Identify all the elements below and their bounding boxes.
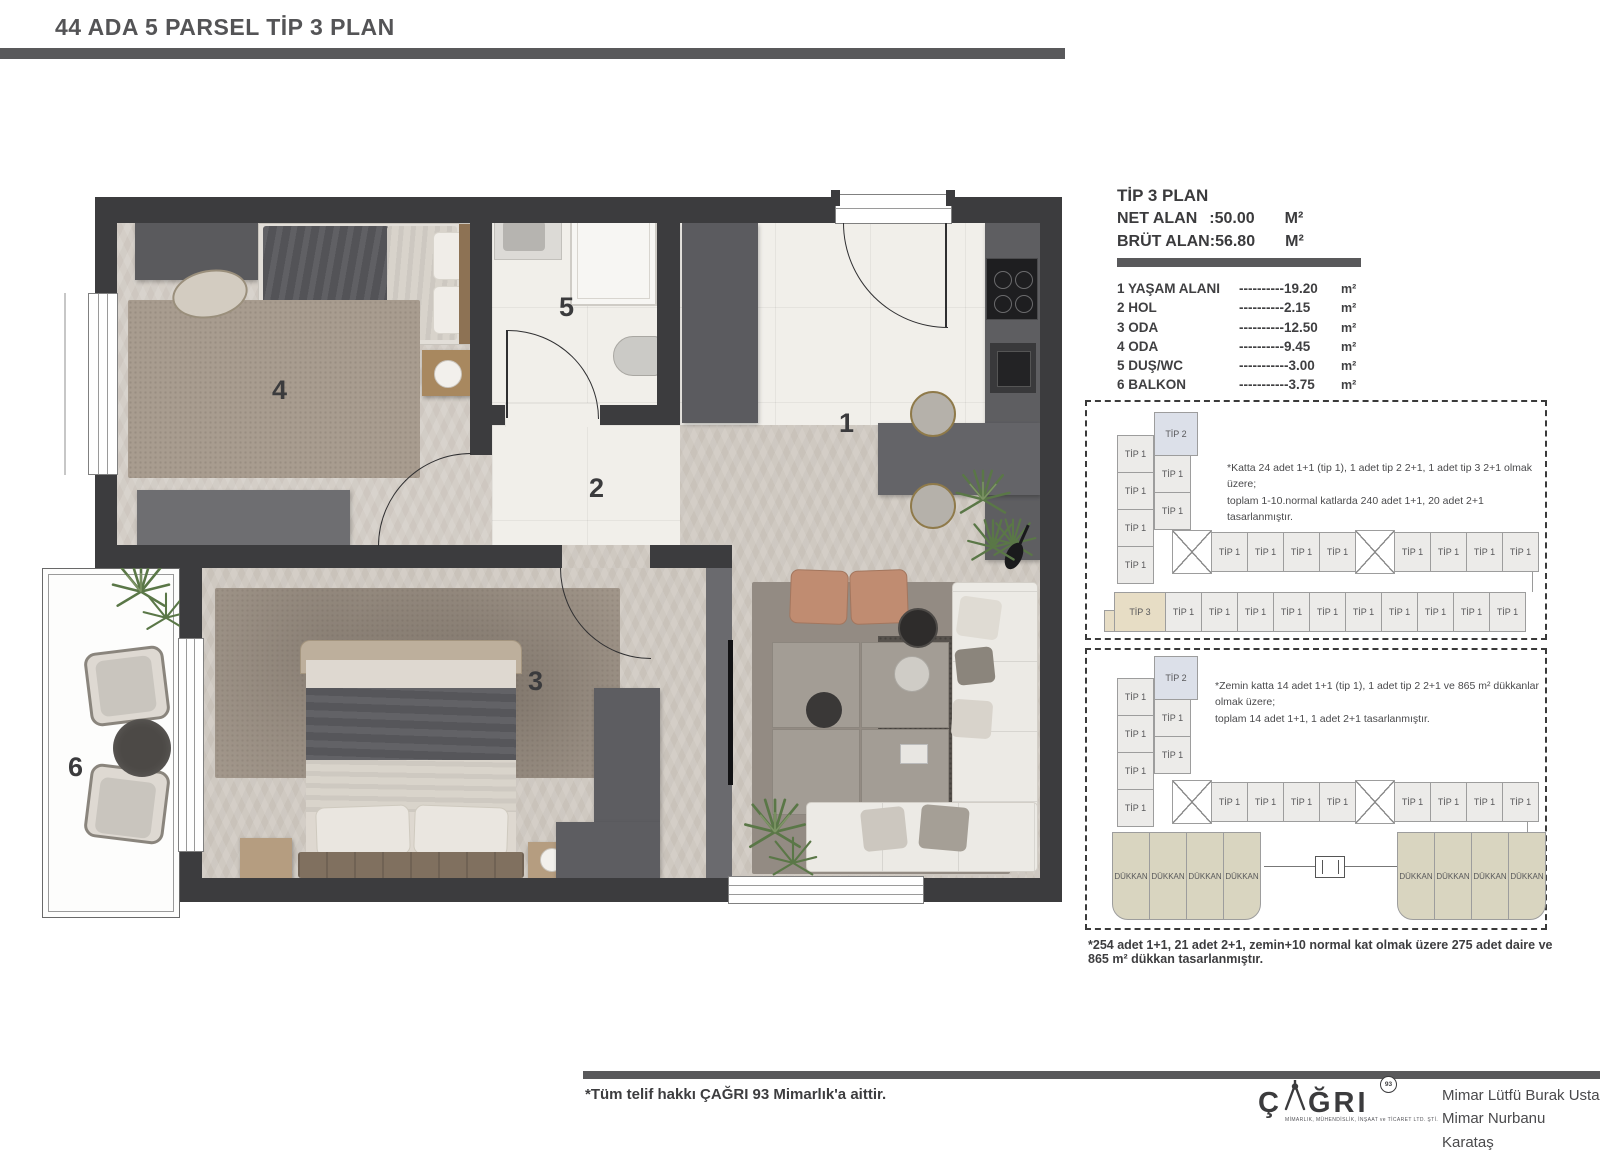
unit-cell: TİP 1 [1345, 592, 1382, 632]
floor-hall [492, 425, 680, 545]
door-leaf [506, 330, 508, 418]
leader-dashes: ---------- [1239, 320, 1284, 335]
leader-dashes: ---------- [1239, 281, 1284, 296]
room-label-1: 1 [839, 408, 854, 439]
shop-cell: DÜKKAN [1223, 832, 1261, 920]
unit-cell: TİP 1 [1453, 592, 1490, 632]
room-area-list: 1 YAŞAM ALANI ----------19.20 m² 2 HOL -… [1117, 281, 1367, 397]
pillow [413, 804, 509, 857]
shop-cell: DÜKKAN [1434, 832, 1472, 920]
floor-plan: 1 2 3 4 5 6 [0, 0, 1080, 1000]
room-area-row: 6 BALKON -----------3.75 m² [1117, 377, 1367, 396]
unit-cell-tip3: TİP 3 [1114, 592, 1166, 632]
unit-cell: TİP 1 [1247, 782, 1284, 822]
window-room4 [88, 293, 118, 475]
unit-cell: TİP 1 [1273, 592, 1310, 632]
unit-cell: TİP 1 [1319, 782, 1356, 822]
room-name: 3 ODA [1117, 320, 1239, 335]
shop-cell: DÜKKAN [1186, 832, 1224, 920]
room-area-value: 19.20 [1284, 281, 1318, 296]
unit-cell: TİP 1 [1502, 532, 1539, 572]
unit-cell: TİP 1 [1201, 592, 1238, 632]
unit-cell: TİP 1 [1117, 789, 1154, 827]
shop-cell: DÜKKAN [1508, 832, 1546, 920]
sofa-pillow [954, 646, 996, 686]
room-area-unit: m² [1341, 301, 1367, 315]
wardrobe-room3 [556, 822, 660, 878]
shower-tray [577, 219, 650, 299]
entry-closet [682, 223, 758, 423]
unit-cell-tip2: TİP 2 [1154, 656, 1198, 700]
scheme-column: TİP 1TİP 1 [1154, 699, 1191, 774]
room-name: 1 YAŞAM ALANI [1117, 281, 1239, 296]
unit-cell: TİP 1 [1283, 782, 1320, 822]
unit-cell: TİP 1 [1247, 532, 1284, 572]
unit-cell: TİP 1 [1237, 592, 1274, 632]
room-area-unit: m² [1341, 359, 1367, 373]
core-cell [1355, 780, 1395, 824]
unit-cell: TİP 1 [1394, 532, 1431, 572]
unit-cell-tip2: TİP 2 [1154, 412, 1198, 456]
wall-bottom [180, 878, 1062, 902]
room-area-row: 3 ODA ----------12.50 m² [1117, 320, 1367, 339]
net-area-label: NET ALAN [1117, 210, 1197, 228]
room-area-unit: m² [1341, 340, 1367, 354]
sink-basin [503, 221, 545, 251]
plan-type-title: TİP 3 PLAN [1117, 186, 1208, 206]
shop-cell: DÜKKAN [1112, 832, 1150, 920]
architect-names: Mimar Lütfü Burak Usta Mimar Nurbanu Kar… [1442, 1084, 1600, 1154]
sofa-pillow [951, 699, 994, 740]
floor-door-gap [562, 545, 650, 568]
scheme-column: TİP 1TİP 1TİP 1TİP 1 [1117, 678, 1154, 827]
leader-dashes: ---------- [1239, 339, 1284, 354]
logo-badge: 93 [1380, 1076, 1397, 1093]
unit-cell: TİP 1 [1117, 472, 1154, 510]
unit-cell: TİP 1 [1154, 736, 1191, 774]
unit-cell: TİP 1 [1211, 782, 1248, 822]
scheme-connector [1532, 572, 1533, 592]
unit-cell: TİP 1 [1165, 592, 1202, 632]
unit-cell: TİP 1 [1117, 509, 1154, 547]
room-name: 4 ODA [1117, 339, 1239, 354]
toilet [613, 336, 659, 376]
blanket [306, 688, 516, 762]
room-label-2: 2 [589, 473, 604, 504]
unit-cell: TİP 1 [1117, 678, 1154, 716]
magazine [900, 744, 928, 764]
net-area-value: :50.00 [1209, 210, 1254, 228]
unit-cell: TİP 1 [1394, 782, 1431, 822]
scheme-note: *Zemin katta 14 adet 1+1 (tip 1), 1 adet… [1215, 678, 1541, 727]
architect-1: Mimar Lütfü Burak Usta [1442, 1084, 1600, 1107]
scheme-connector [1527, 822, 1528, 832]
window-sill [64, 293, 66, 475]
info-rule [1117, 258, 1361, 267]
wardrobe-room3 [594, 688, 660, 822]
nightstand-room4 [422, 350, 472, 396]
balcony-slider [178, 638, 204, 852]
room-name: 6 BALKON [1117, 377, 1239, 392]
wall-right [1040, 197, 1062, 902]
leader-dashes: ----------- [1239, 377, 1288, 392]
wall-mid [95, 545, 562, 568]
gross-area-unit: M² [1285, 233, 1304, 251]
core-cell [1172, 530, 1212, 574]
scheme-mid-row: TİP 1TİP 1TİP 1TİP 1 TİP 1TİP 1TİP 1TİP … [1172, 780, 1539, 824]
logo-tagline: MİMARLIK, MÜHENDİSLİK, İNŞAAT ve TİCARET… [1285, 1117, 1438, 1123]
entry-door-frame [835, 194, 952, 224]
room-name: 2 HOL [1117, 300, 1239, 315]
plant-icon [962, 512, 1024, 579]
shops-corridor [1264, 832, 1397, 920]
unit-cell: TİP 1 [1117, 546, 1154, 584]
unit-cell: TİP 1 [1117, 715, 1154, 753]
scheme-mid-row: TİP 1TİP 1TİP 1TİP 1 TİP 1TİP 1TİP 1TİP … [1172, 530, 1539, 574]
door-leaf [945, 223, 947, 327]
logo-letters: ĞRI [1308, 1090, 1369, 1116]
unit-cell: TİP 1 [1430, 532, 1467, 572]
unit-cell: TİP 1 [1154, 699, 1191, 737]
window-living [728, 876, 924, 904]
gross-area-line: BRÜT ALAN: 56.80 M² [1117, 233, 1304, 251]
room-area-row: 4 ODA ----------9.45 m² [1117, 339, 1367, 358]
unit-cell: TİP 1 [1430, 782, 1467, 822]
unit-cell: TİP 1 [1154, 455, 1191, 493]
pillow [315, 804, 411, 857]
ottoman [789, 569, 849, 625]
unit-cell: TİP 1 [1319, 532, 1356, 572]
typical-floor-scheme: TİP 1TİP 1TİP 1TİP 1 TİP 2 TİP 1TİP 1 Tİ… [1085, 400, 1547, 640]
nightstand-room3 [240, 838, 292, 878]
compass-icon [1283, 1080, 1307, 1116]
tv [728, 640, 733, 785]
shops-right: DÜKKANDÜKKANDÜKKANDÜKKAN [1397, 832, 1546, 920]
room-area-value: 9.45 [1284, 339, 1310, 354]
unit-cell: TİP 1 [1466, 782, 1503, 822]
bed-room3 [298, 640, 524, 878]
wall-bath-right [657, 197, 680, 425]
sofa-pillow [955, 595, 1002, 640]
sheet [306, 760, 516, 812]
net-area-unit: M² [1285, 210, 1304, 228]
sofa-pillow [918, 804, 970, 852]
unit-cell: TİP 1 [1154, 492, 1191, 530]
lamp [434, 360, 462, 388]
dining-chair [910, 391, 956, 437]
room-name: 5 DUŞ/WC [1117, 358, 1239, 373]
leader-dashes: ----------- [1239, 358, 1288, 373]
room-area-unit: m² [1341, 378, 1367, 392]
unit-cell: TİP 1 [1417, 592, 1454, 632]
room-area-row: 2 HOL ----------2.15 m² [1117, 300, 1367, 319]
kitchen-sink [990, 343, 1036, 393]
room-label-6: 6 [68, 752, 83, 783]
shower [570, 212, 657, 306]
net-area-line: NET ALAN :50.00 M² [1117, 210, 1303, 228]
unit-cell: TİP 1 [1283, 532, 1320, 572]
room-area-row: 5 DUŞ/WC -----------3.00 m² [1117, 358, 1367, 377]
room-area-value: 2.15 [1284, 300, 1310, 315]
side-table-round [898, 608, 938, 648]
shops-left: DÜKKANDÜKKANDÜKKANDÜKKAN [1112, 832, 1261, 920]
stair-glyph [1315, 856, 1345, 878]
room-label-3: 3 [528, 666, 543, 697]
copyright-text: *Tüm telif hakkı ÇAĞRI 93 Mimarlık'a ait… [585, 1086, 886, 1103]
shop-cell: DÜKKAN [1397, 832, 1435, 920]
unit-cell: TİP 1 [1466, 532, 1503, 572]
door-opening-room4 [470, 455, 492, 545]
room-label-5: 5 [559, 292, 574, 323]
unit-cell: TİP 1 [1489, 592, 1526, 632]
room-area-row: 1 YAŞAM ALANI ----------19.20 m² [1117, 281, 1367, 300]
balcony-table [113, 719, 171, 777]
unit-cell: TİP 1 [1117, 752, 1154, 790]
tray [806, 692, 842, 728]
company-logo: Ç ĞRI [1258, 1082, 1369, 1116]
footer-rule [583, 1071, 1600, 1079]
room-area-value: 3.00 [1288, 358, 1314, 373]
door-jamb [831, 190, 840, 206]
room-area-value: 12.50 [1284, 320, 1318, 335]
scheme-bottom-row: TİP 3 TİP 1TİP 1TİP 1TİP 1TİP 1TİP 1TİP … [1114, 592, 1526, 632]
scheme-column: TİP 1TİP 1TİP 1TİP 1 [1117, 435, 1154, 584]
logo-letter-c: Ç [1258, 1090, 1282, 1116]
wall-mid [650, 545, 732, 568]
shop-cell: DÜKKAN [1471, 832, 1509, 920]
plate [894, 656, 930, 692]
room-area-unit: m² [1341, 321, 1367, 335]
gross-area-value: 56.80 [1215, 233, 1255, 251]
scheme-footnote: *254 adet 1+1, 21 adet 2+1, zemin+10 nor… [1088, 938, 1558, 966]
room-area-value: 3.75 [1288, 377, 1314, 392]
ground-floor-scheme: TİP 1TİP 1TİP 1TİP 1 TİP 2 TİP 1TİP 1 Tİ… [1085, 648, 1547, 930]
leader-dashes: ---------- [1239, 300, 1284, 315]
core-cell [1355, 530, 1395, 574]
unit-cell: TİP 1 [1211, 532, 1248, 572]
dresser-room4 [137, 490, 350, 545]
stove [986, 258, 1038, 320]
scheme-notch [1104, 610, 1115, 632]
room-area-unit: m² [1341, 282, 1367, 296]
shop-cell: DÜKKAN [1149, 832, 1187, 920]
unit-cell: TİP 1 [1117, 435, 1154, 473]
balcony-chair [83, 644, 171, 727]
scheme-column: TİP 1TİP 1 [1154, 455, 1191, 530]
sofa-pillow [860, 806, 908, 852]
unit-cell: TİP 1 [1502, 782, 1539, 822]
unit-cell: TİP 1 [1381, 592, 1418, 632]
gross-area-label: BRÜT ALAN: [1117, 233, 1215, 251]
unit-cell: TİP 1 [1309, 592, 1346, 632]
door-jamb [946, 190, 955, 206]
core-cell [1172, 780, 1212, 824]
balcony-chair [83, 762, 171, 845]
room-label-4: 4 [272, 375, 287, 406]
scheme-note: *Katta 24 adet 1+1 (tip 1), 1 adet tip 2… [1227, 460, 1545, 525]
bed-base [298, 852, 524, 878]
